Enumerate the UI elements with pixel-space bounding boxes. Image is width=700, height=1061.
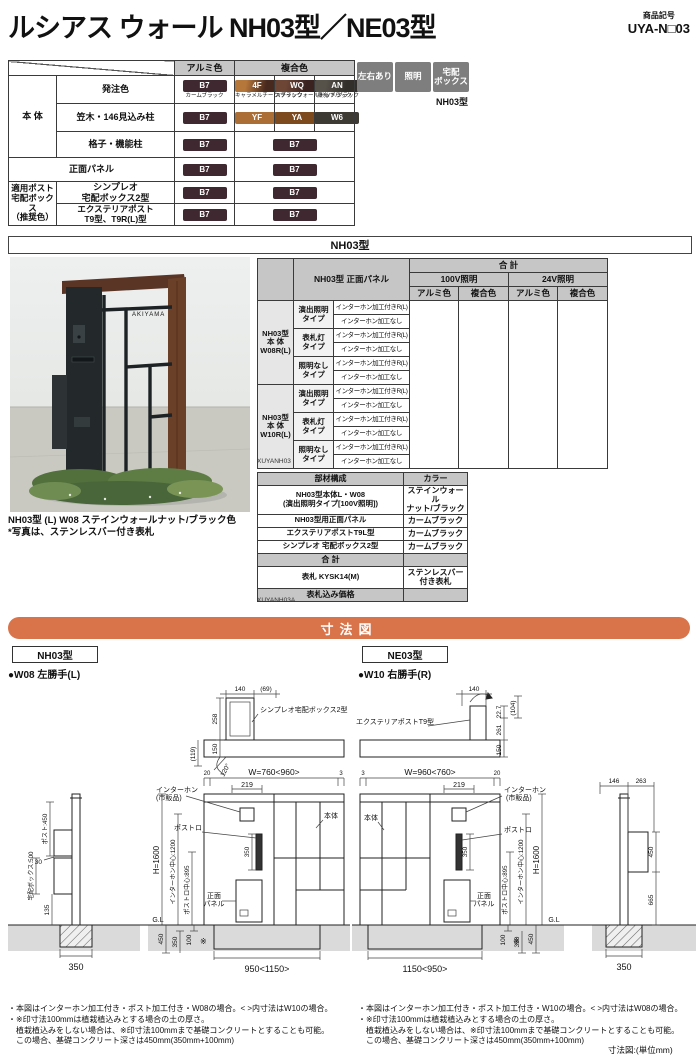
footnote-line: ・※印寸法100mmは植栽植込みとする場合の土の厚さ。 (8, 1015, 358, 1026)
price-group-w08: NH03型 本 体 W08R(L) (258, 301, 294, 385)
swatch-an-name: 桑炭/ブラック (315, 93, 354, 99)
page-title: ルシアス ウォール NH03型／NE03型 (8, 6, 436, 45)
swatch-b7: B7 (183, 112, 227, 124)
swatch-b7: B7 (273, 187, 317, 199)
swatch-b7: B7 (273, 139, 317, 151)
dim-label: 350 (514, 936, 521, 947)
price-col-alumi: アルミ色 (410, 287, 459, 301)
dim-label: 22.7 (496, 705, 503, 718)
photo-main-panel (66, 287, 102, 489)
swatch-cell: YF (235, 104, 275, 132)
dim-label: 450 (648, 846, 655, 857)
swatch-cell: B7 (175, 132, 235, 158)
feature-badges: 左右あり 照明 宅配 ボックス (357, 62, 469, 92)
price-col-alumi: アルミ色 (509, 287, 558, 301)
swatch-cell: 4Fキャラメルチーク/ブラック (235, 76, 275, 104)
swatch-cell: B7 (175, 158, 235, 182)
front-panel-label: 正面 (207, 892, 221, 900)
dim-label: 146 (609, 778, 620, 785)
ground-line-label: G.L (152, 917, 163, 924)
price-col-fukugo: 複合色 (459, 287, 509, 301)
row-label-post-group: 適用ポスト 宅配ボックス （推奨色） (9, 182, 57, 226)
dim-label: 450 (528, 933, 535, 944)
swatch-an: AN (315, 80, 359, 92)
price-24v-header: 24V照明 (509, 273, 608, 287)
parts-row-total: 合 計 (258, 553, 404, 566)
swatch-ya: YA (275, 112, 319, 124)
parts-row-color: ステインウォール ナット/ブラック (404, 486, 468, 515)
dim-label: 350 (462, 846, 469, 857)
badge-left-right: 左右あり (357, 62, 393, 92)
price-table-code: XUYANH03 (257, 458, 291, 465)
photo-caption-line1: NH03型 (L) W08 ステインウォールナット/ブラック色 (8, 515, 236, 527)
swatch-cell: B7 (175, 204, 235, 226)
swatch-cell: B7カームブラック (175, 76, 235, 104)
dimension-drawing-nh03: 140 (69) シンプレオ宅配ボックス2型 258 150 (119) 120… (8, 682, 350, 1002)
dim-label: H=1600 (152, 845, 161, 874)
product-code-label: 商品記号 (628, 10, 690, 21)
parts-row-total-color (404, 553, 468, 566)
dim-label: 219 (241, 782, 253, 789)
price-cell (558, 301, 608, 469)
dim-label: (104) (510, 700, 517, 715)
dim-label: ポスト:450 (41, 813, 49, 844)
dim-label: 135 (44, 904, 51, 915)
dim-label: ポストロ中心:895 (183, 865, 191, 915)
dim-label: 350 (616, 962, 631, 972)
price-type: 表札灯 タイプ (294, 413, 334, 441)
footnotes-nh03: ・本図はインターホン加工付き・ポスト加工付き・W08の場合。< >内寸法はW10… (8, 1004, 358, 1047)
swatch-4f: 4F (235, 80, 279, 92)
model-box-ne03: NE03型 (362, 646, 448, 663)
swatch-cell: YA (275, 104, 315, 132)
price-group-w10: NH03型 本 体 W10R(L) (258, 385, 294, 469)
row-label-exterior-post: エクステリアポスト T9型、T9R(L)型 (57, 204, 175, 226)
swatch-cell: B7 (235, 158, 355, 182)
variant-label-w10: ●W10 右勝手(R) (358, 666, 431, 681)
dim-label: W=960<760> (404, 767, 455, 777)
parts-row-color: カームブラック (404, 514, 468, 527)
dim-label: 120° (219, 762, 233, 778)
parts-row-price-color (404, 588, 468, 601)
parts-row-color: ステンレスバー 付き表札 (404, 566, 468, 588)
dim-label: インターホン中心:1200 (169, 839, 177, 905)
section-header-nh03: NH03型 (8, 236, 692, 254)
price-variant: インターホン加工なし (334, 455, 410, 469)
dim-label: H=1600 (532, 845, 541, 874)
dim-label: 30 (35, 859, 43, 866)
photo-delivery-box (52, 375, 67, 449)
dim-label: 140 (235, 686, 246, 693)
swatch-wq: WQ (275, 80, 319, 92)
price-variant: インターホン加工なし (334, 399, 410, 413)
col-header-alumi: アルミ色 (175, 61, 235, 76)
parts-row-name: シンプレオ 宅配ボックス2型 (258, 540, 404, 553)
price-variant: インターホン加工付きR(L) (334, 441, 410, 455)
product-code-value: UYA-N□03 (628, 21, 690, 36)
product-photo: AKIYAMA (10, 257, 250, 512)
variant-label-w08: ●W08 左勝手(L) (8, 666, 80, 681)
swatch-wq-name: ステインウォールナット/ブラック (275, 93, 314, 99)
body-label: 本体 (364, 813, 378, 822)
parts-table: 部材構成 カラー NH03型本体L・W08 (演出照明タイプ[100V照明]) … (257, 472, 468, 602)
dim-label: W=760<960> (248, 767, 299, 777)
price-table: NH03型 正面パネル 合 計 100V照明 24V照明 アルミ色 複合色 アル… (257, 258, 608, 469)
price-col-fukugo: 複合色 (558, 287, 608, 301)
swatch-b7: B7 (183, 139, 227, 151)
front-panel-label2: パネル (474, 900, 495, 908)
dim-label: 219 (453, 782, 465, 789)
swatch-w6: W6 (315, 112, 359, 124)
dim-label: 350 (172, 936, 179, 947)
corner-cell (9, 61, 175, 76)
photo-caption: NH03型 (L) W08 ステインウォールナット/ブラック色 *写真は、ステン… (8, 515, 236, 540)
dim-label: 665 (648, 894, 655, 905)
price-type: 演出照明 タイプ (294, 301, 334, 329)
swatch-b7: B7 (183, 209, 227, 221)
dim-label: 950<1150> (245, 964, 290, 974)
parts-row-color: カームブラック (404, 527, 468, 540)
dim-label: 140 (469, 686, 480, 693)
footnote-line: 植栽植込みをしない場合は、※印寸法100mmまで基礎コンクリートとすることも可能… (8, 1026, 358, 1037)
dim-label: 100 (186, 934, 193, 945)
parts-row-name: NH03型用正面パネル (258, 514, 404, 527)
row-label-koshi: 格子・機能柱 (57, 132, 175, 158)
parts-row-name: 表札 KYSK14(M) (258, 566, 404, 588)
dim-label: 261 (496, 724, 503, 735)
price-type: 照明なし タイプ (294, 441, 334, 469)
photo-post-slot (72, 357, 94, 362)
footnote-line: この場合、基礎コンクリート深さは450mm(350mm+100mm) (8, 1036, 358, 1047)
badge-lighting: 照明 (395, 62, 431, 92)
photo-caption-line2: *写真は、ステンレスバー付き表札 (8, 527, 236, 539)
dim-label: 20 (494, 771, 501, 777)
price-cell (459, 301, 509, 469)
interphone-label: インターホン (156, 785, 198, 794)
swatch-b7: B7 (183, 164, 227, 176)
swatch-cell: B7 (175, 104, 235, 132)
dim-label: 150 (496, 744, 503, 755)
interphone-label2: (市販品) (506, 793, 532, 802)
parts-row-color: カームブラック (404, 540, 468, 553)
parts-table-code: XUYANH03A (257, 597, 295, 604)
swatch-cell: B7 (175, 182, 235, 204)
price-variant: インターホン加工付きR(L) (334, 385, 410, 399)
color-table: アルミ色 複合色 本 体 発注色 B7カームブラック 4Fキャラメルチーク/ブラ… (8, 60, 355, 226)
price-cell (410, 301, 459, 469)
unit-note: 寸法図:(単位mm) (608, 1044, 673, 1056)
swatch-b7: B7 (183, 80, 227, 92)
price-panel-header: NH03型 正面パネル (294, 259, 410, 301)
swatch-b7: B7 (273, 164, 317, 176)
row-label-simpleo: シンプレオ 宅配ボックス2型 (57, 182, 175, 204)
dim-label: 263 (636, 778, 647, 785)
post-slot-label: ポストロ (504, 826, 532, 834)
col-header-fukugo: 複合色 (235, 61, 355, 76)
footnotes-ne03: ・本図はインターホン加工付き・ポスト加工付き・W10の場合。< >内寸法はW08… (358, 1004, 700, 1047)
parts-row-name: エクステリアポストT9L型 (258, 527, 404, 540)
ground-line-label: G.L (548, 917, 559, 924)
dim-label: 150 (212, 743, 219, 754)
dimension-drawing-ne03: 140 エクステリアポストT9型 22.7 (104) 261 150 3 W=… (352, 682, 696, 1002)
price-corner (258, 259, 294, 301)
dim-label: 350 (244, 846, 251, 857)
price-type: 表札灯 タイプ (294, 329, 334, 357)
front-panel-label2: パネル (204, 900, 225, 908)
row-label-body: 本 体 (9, 76, 57, 158)
price-cell (509, 301, 558, 469)
price-variant: インターホン加工なし (334, 315, 410, 329)
price-type: 演出照明 タイプ (294, 385, 334, 413)
interphone-label: インターホン (504, 785, 546, 794)
swatch-cell: AN桑炭/ブラック (315, 76, 355, 104)
plan-box-label: エクステリアポストT9型 (356, 717, 434, 726)
dim-label: 宅配ボックス:500 (27, 851, 35, 901)
swatch-cell: B7 (235, 182, 355, 204)
parts-header-color: カラー (404, 473, 468, 486)
row-label-kasagi: 笠木・146見込み柱 (57, 104, 175, 132)
photo-interphone (73, 325, 85, 343)
row-label-order-color: 発注色 (57, 76, 175, 104)
swatch-cell: B7 (235, 204, 355, 226)
front-panel-label: 正面 (477, 892, 491, 900)
price-100v-header: 100V照明 (410, 273, 509, 287)
swatch-cell: WQステインウォールナット/ブラック (275, 76, 315, 104)
photo-nameplate: AKIYAMA (132, 312, 165, 318)
swatch-b7: B7 (273, 209, 317, 221)
dim-label: 3 (361, 771, 365, 777)
footnote-line: ・本図はインターホン加工付き・ポスト加工付き・W10の場合。< >内寸法はW08… (358, 1004, 700, 1015)
swatch-cell: W6 (315, 104, 355, 132)
footnote-line: ・本図はインターホン加工付き・ポスト加工付き・W08の場合。< >内寸法はW10… (8, 1004, 358, 1015)
price-variant: インターホン加工なし (334, 343, 410, 357)
dim-label: 258 (212, 713, 219, 724)
dim-label: 350 (68, 962, 83, 972)
swatch-cell: B7 (235, 132, 355, 158)
footnote-line: ・※印寸法100mmは植栽植込みとする場合の土の厚さ。 (358, 1015, 700, 1026)
price-variant: インターホン加工付きR(L) (334, 413, 410, 427)
price-variant: インターホン加工付きR(L) (334, 329, 410, 343)
footnote-line: 植栽植込みをしない場合は、※印寸法100mmまで基礎コンクリートとすることも可能… (358, 1026, 700, 1037)
price-variant: インターホン加工なし (334, 427, 410, 441)
price-total-header: 合 計 (410, 259, 608, 273)
dim-label: 20 (204, 771, 211, 777)
section-header-dimensions: 寸法図 (8, 617, 690, 639)
price-variant: インターホン加工付きR(L) (334, 301, 410, 315)
dim-label: 1150<950> (403, 964, 448, 974)
price-variant: インターホン加工なし (334, 371, 410, 385)
note-mark: ※ (200, 937, 207, 946)
price-variant: インターホン加工付きR(L) (334, 357, 410, 371)
badge-delivery-box: 宅配 ボックス (433, 62, 469, 92)
badge-note: NH03型 (433, 95, 471, 108)
row-label-front-panel: 正面パネル (9, 158, 175, 182)
product-code: 商品記号 UYA-N□03 (628, 10, 690, 36)
model-box-nh03: NH03型 (12, 646, 98, 663)
body-label: 本体 (324, 811, 338, 820)
price-type: 照明なし タイプ (294, 357, 334, 385)
dim-label: 450 (158, 933, 165, 944)
catalog-page: ルシアス ウォール NH03型／NE03型 商品記号 UYA-N□03 アルミ色… (0, 0, 700, 1061)
dim-label: (69) (260, 686, 272, 693)
dim-label: 100 (500, 934, 507, 945)
swatch-yf: YF (235, 112, 279, 124)
parts-header-name: 部材構成 (258, 473, 404, 486)
swatch-b7-name: カームブラック (175, 93, 234, 99)
dim-label: インターホン中心:1200 (517, 839, 525, 905)
swatch-b7: B7 (183, 187, 227, 199)
dim-label: ポストロ中心:895 (501, 865, 509, 915)
plan-box-label: シンプレオ宅配ボックス2型 (260, 705, 347, 714)
swatch-4f-name: キャラメルチーク/ブラック (235, 93, 274, 99)
dim-label: (119) (190, 747, 197, 762)
dim-label: 3 (339, 771, 343, 777)
parts-row-name: NH03型本体L・W08 (演出照明タイプ[100V照明]) (258, 486, 404, 515)
